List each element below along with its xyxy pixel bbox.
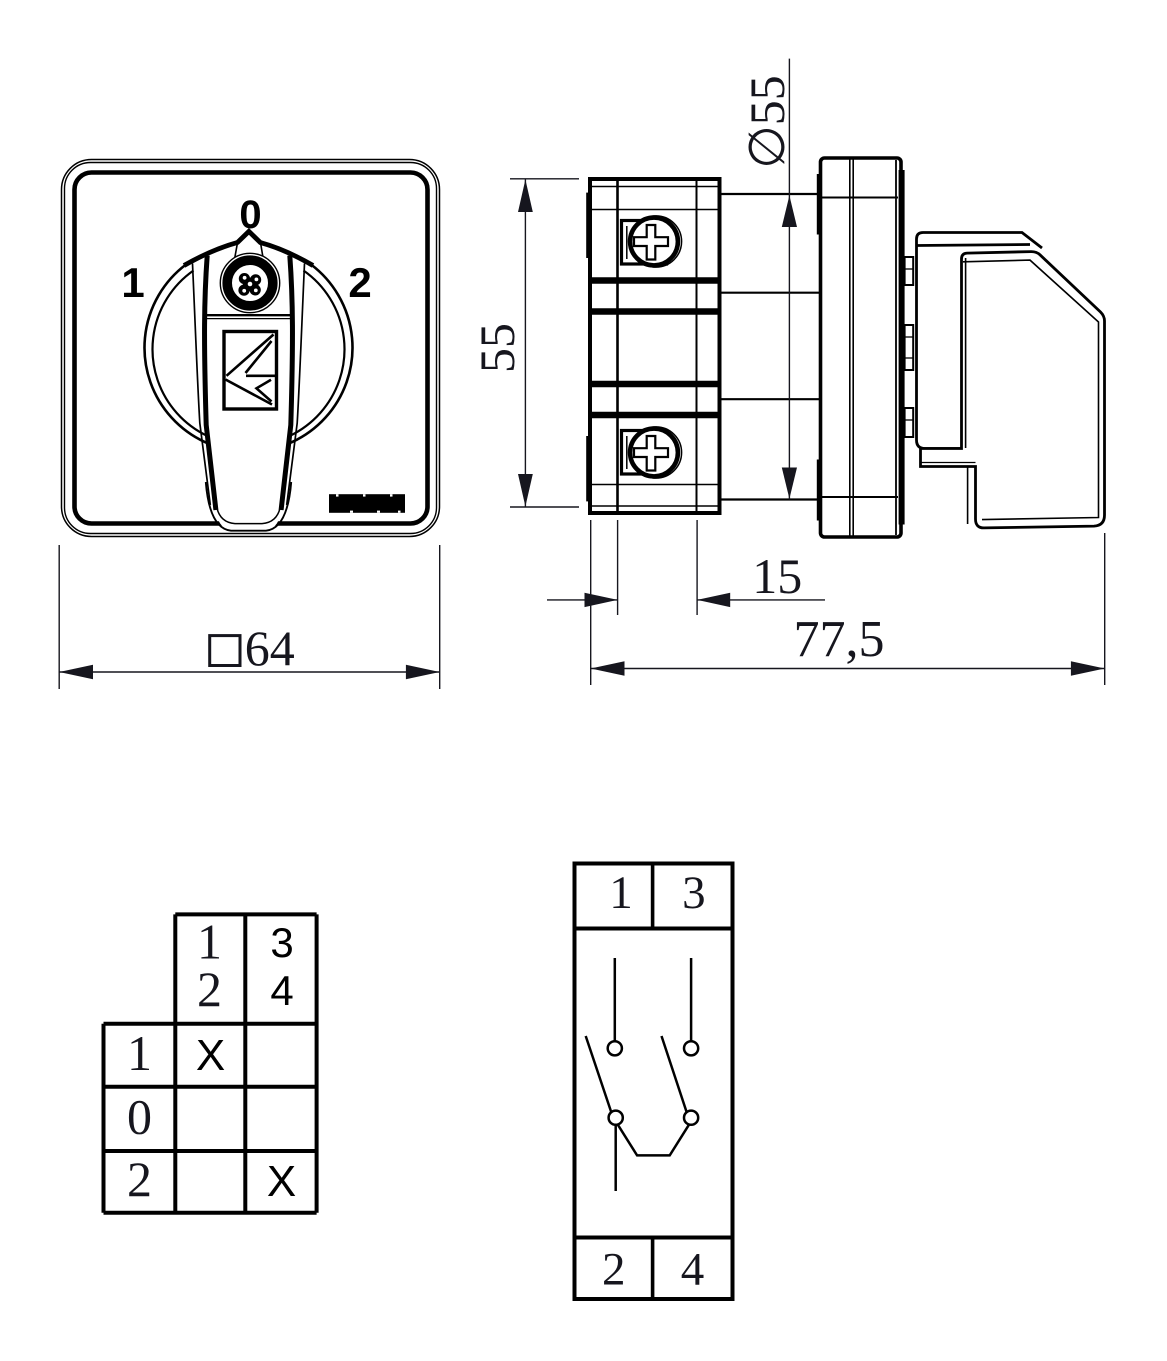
svg-text:0: 0 — [127, 1089, 152, 1145]
svg-text:64: 64 — [245, 620, 295, 676]
svg-text:3: 3 — [270, 919, 293, 966]
svg-text:3: 3 — [682, 867, 706, 919]
svg-text:2: 2 — [602, 1244, 626, 1296]
svg-text:2: 2 — [348, 259, 371, 306]
svg-text:2: 2 — [197, 961, 222, 1017]
svg-text:1: 1 — [121, 259, 144, 306]
svg-text:55: 55 — [469, 323, 525, 373]
svg-text:1: 1 — [127, 1025, 152, 1081]
svg-text:1: 1 — [609, 867, 633, 919]
svg-text:77,5: 77,5 — [794, 611, 885, 668]
svg-text:∅55: ∅55 — [739, 75, 795, 169]
svg-text:4: 4 — [681, 1244, 705, 1296]
svg-text:X: X — [267, 1157, 296, 1206]
svg-text:15: 15 — [752, 548, 802, 604]
svg-text:2: 2 — [127, 1151, 152, 1207]
svg-text:4: 4 — [270, 967, 293, 1014]
svg-text:0: 0 — [239, 193, 261, 237]
svg-text:X: X — [196, 1031, 225, 1080]
